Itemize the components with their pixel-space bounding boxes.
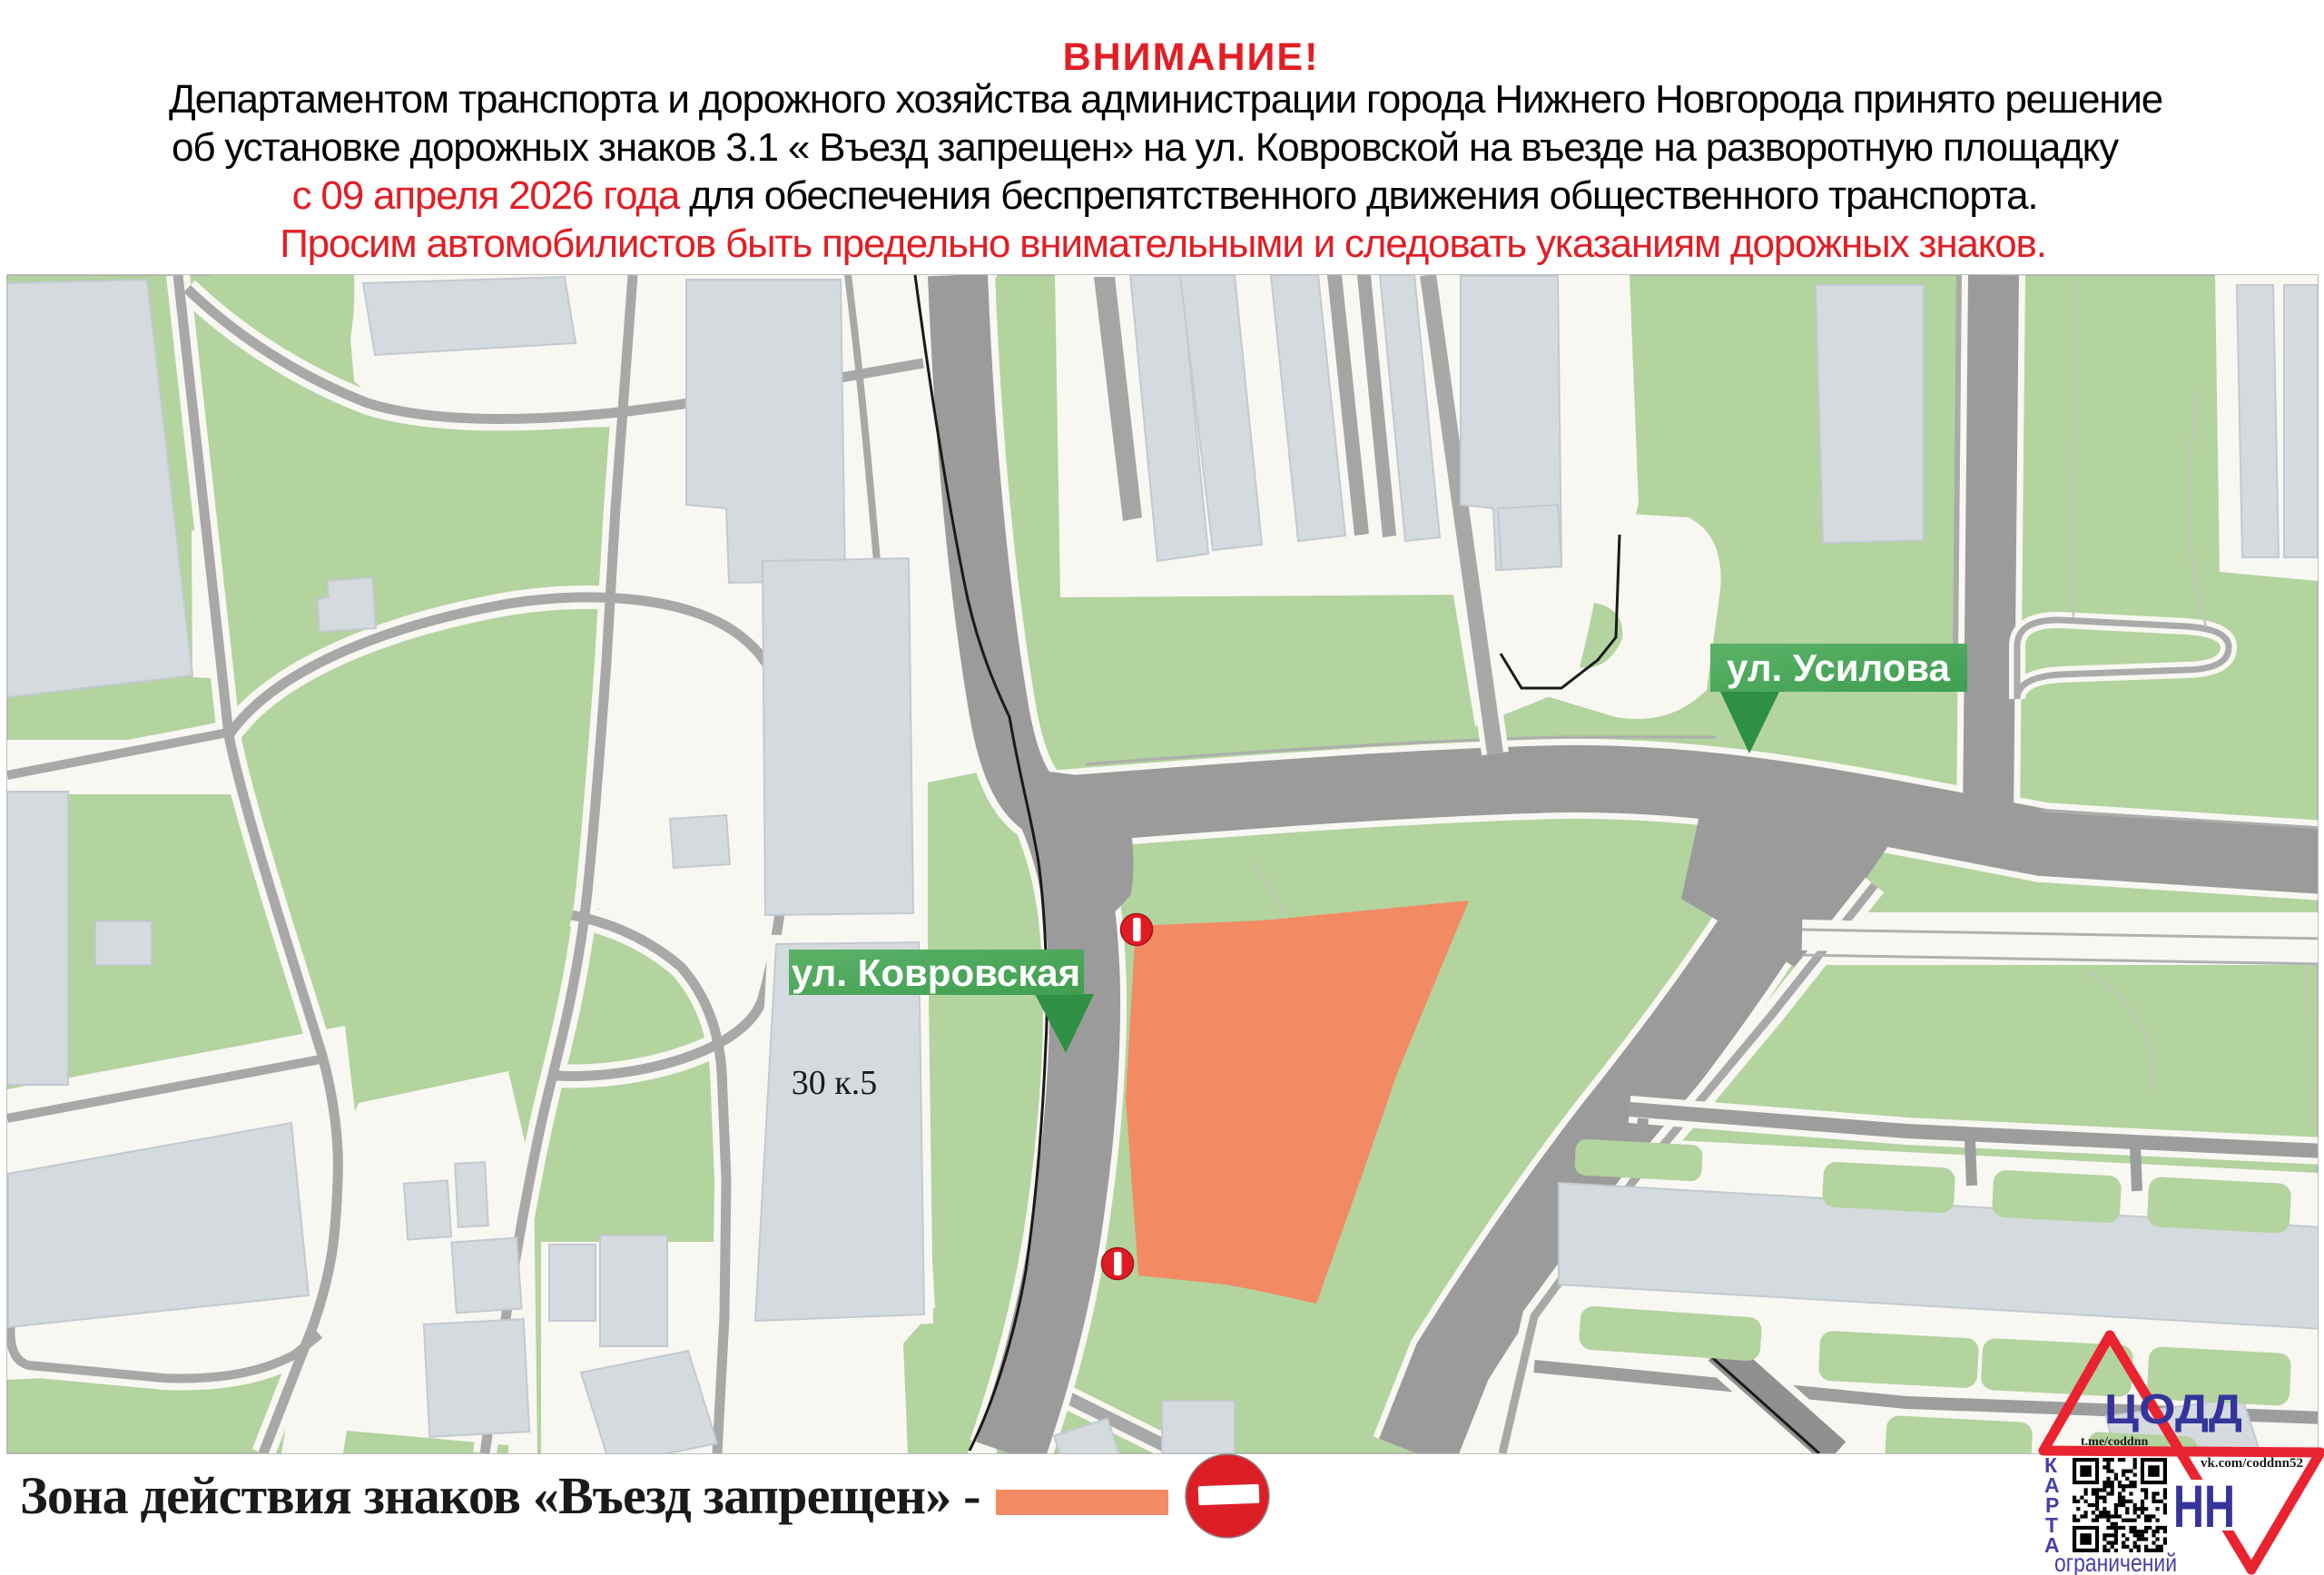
svg-text:ограничений: ограничений — [2054, 1549, 2177, 1575]
svg-text:об установке дорожных знаков 3: об установке дорожных знаков 3.1 « Въезд… — [172, 125, 2119, 170]
svg-text:vk.com/coddnn52: vk.com/coddnn52 — [2201, 1456, 2303, 1471]
svg-text:с 09 апреля 2026 года для обес: с 09 апреля 2026 года для обеспечения бе… — [292, 173, 2038, 218]
svg-text:Зона действия знаков «Въезд за: Зона действия знаков «Въезд запрещен» - — [20, 1466, 980, 1525]
svg-text:ул. Усилова: ул. Усилова — [1727, 646, 1951, 689]
svg-text:ВНИМАНИЕ!: ВНИМАНИЕ! — [1063, 35, 1320, 79]
svg-text:ЦОДД: ЦОДД — [2104, 1385, 2242, 1432]
svg-text:ул. Ковровская: ул. Ковровская — [792, 951, 1080, 994]
svg-text:t.me/coddnn: t.me/coddnn — [2081, 1435, 2149, 1449]
svg-text:Департаментом транспорта и дор: Департаментом транспорта и дорожного хоз… — [169, 77, 2162, 122]
svg-text:Просим автомобилистов быть пре: Просим автомобилистов быть предельно вни… — [280, 221, 2046, 266]
svg-text:НН: НН — [2173, 1472, 2235, 1540]
svg-text:30 к.5: 30 к.5 — [792, 1064, 877, 1102]
